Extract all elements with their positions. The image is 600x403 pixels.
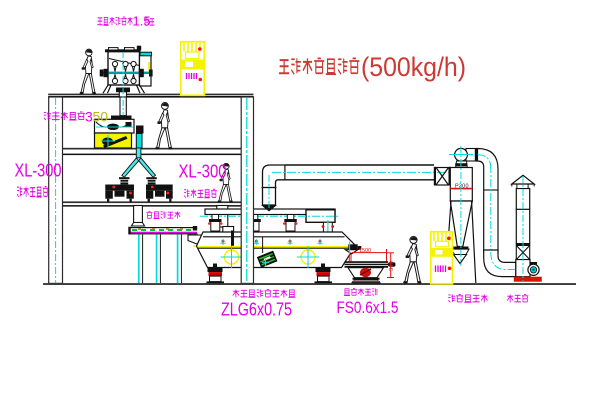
svg-text:340: 340	[389, 261, 395, 271]
svg-text:ZLG6x0.75: ZLG6x0.75	[221, 299, 292, 320]
svg-text:FS0.6x1.5: FS0.6x1.5	[337, 298, 399, 317]
svg-text:XL-300: XL-300	[15, 161, 62, 181]
svg-text:1.5: 1.5	[133, 14, 151, 29]
svg-text:50: 50	[93, 109, 109, 125]
svg-text:XL-300: XL-300	[179, 162, 227, 182]
svg-text:1500: 1500	[359, 248, 371, 254]
svg-text:(500kg/h): (500kg/h)	[361, 52, 466, 82]
